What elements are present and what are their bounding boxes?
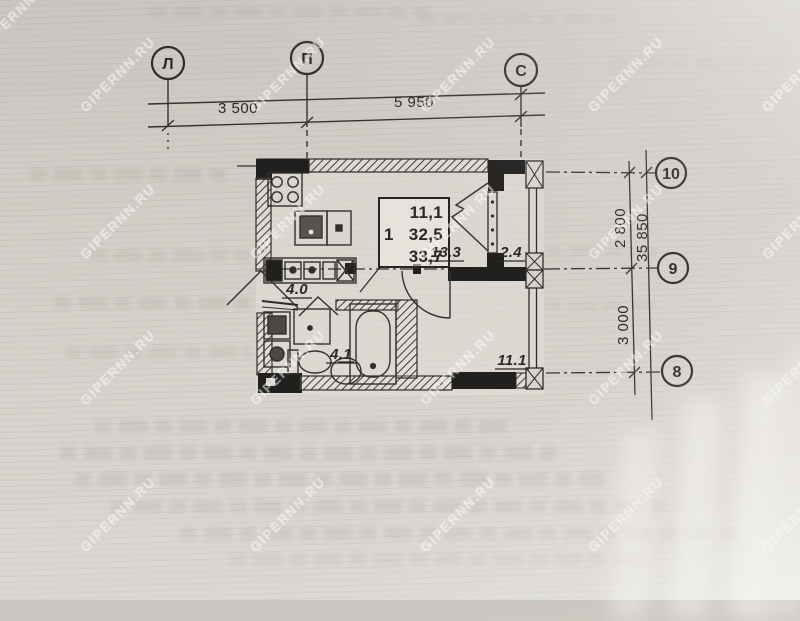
top-dimension-lines (148, 75, 545, 162)
axis-label-8: 8 (673, 364, 682, 381)
axis-label-10: 10 (662, 166, 680, 183)
window-post-bottom (526, 368, 543, 389)
dim-3000: 3 000 (615, 305, 632, 345)
living-area-value: 11,1 (410, 203, 443, 222)
axis-label-S: С (515, 63, 527, 80)
area-hallway: 4.0 (285, 281, 308, 298)
axis-label-9: 9 (669, 261, 678, 278)
photographed-floor-plan-page: { "watermark": { "text": "GIPERNN.RU", "… (0, 0, 800, 600)
axis-label-L: Л (162, 56, 173, 73)
window-post-top (526, 161, 543, 188)
window-post-middle (526, 253, 543, 288)
area-bathroom: 4.1 (329, 346, 352, 363)
area-balcony: 2.4 (499, 244, 522, 261)
rooms-count-value: 1 (384, 225, 394, 244)
area-room: 11.1 (497, 352, 526, 369)
